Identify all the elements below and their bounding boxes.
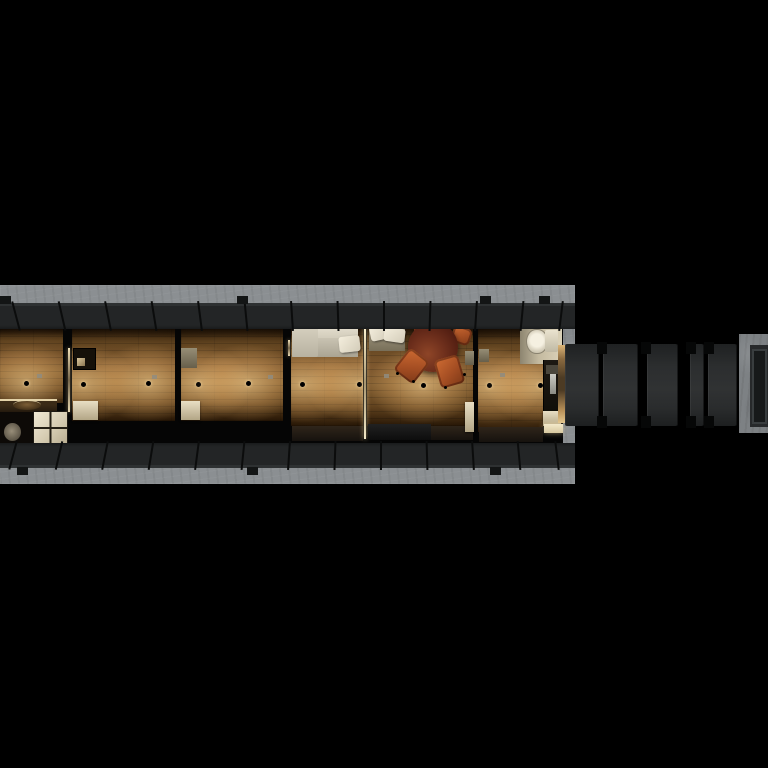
roof-seam: [333, 441, 336, 470]
hull-roof-band-bottom: [0, 443, 575, 468]
roof-seam: [474, 301, 478, 331]
gangway-notch-top: [641, 342, 651, 354]
lounge-bench: [292, 426, 363, 441]
dining-cabinet: [465, 402, 474, 432]
roof-tab: [17, 467, 28, 475]
roof-seam: [197, 301, 203, 331]
bathroom-tile-floor: [33, 411, 68, 445]
counter-sink-slit: [550, 374, 556, 394]
roof-seam: [380, 441, 382, 470]
entry-mat: [368, 424, 431, 440]
entry-gangway: [563, 343, 740, 427]
sofa-chaise: [292, 326, 318, 357]
cabin-1-floor: [0, 329, 63, 403]
gangway-notch-top: [686, 342, 696, 354]
kitchen-bench: [479, 427, 543, 442]
roof-seam: [471, 441, 475, 470]
roof-seam: [104, 301, 112, 331]
cabin-3-locker: [181, 401, 200, 420]
platform-well: [750, 345, 768, 427]
roof-seam: [520, 301, 525, 331]
roof-seam: [554, 441, 559, 470]
roof-seam: [517, 441, 522, 470]
cabin-2-locker: [73, 401, 98, 420]
gangway-panel-2: [603, 344, 638, 426]
roof-seam: [241, 441, 246, 470]
platform-hatch: [752, 349, 767, 424]
hull-roof-band-top: [0, 303, 575, 329]
floor-plan-render: [0, 0, 768, 768]
roof-tab: [0, 296, 11, 304]
ceiling-light: [81, 382, 86, 387]
ceiling-light: [246, 381, 251, 386]
gangway-panel-5: [708, 344, 737, 426]
roof-tab: [237, 296, 248, 304]
cabin-2-cabinet-item: [77, 358, 85, 366]
toilet-tank: [545, 330, 558, 352]
roof-seam: [337, 301, 340, 331]
ceiling-vent: [384, 374, 389, 378]
chair-leg-3: [463, 373, 466, 376]
gangway-notch-bottom: [686, 416, 696, 428]
roof-tab: [539, 296, 550, 304]
kitchen-shelf-lit: [544, 424, 563, 433]
gangway-notch-bottom: [704, 416, 714, 428]
gangway-notch-bottom: [597, 416, 607, 428]
chair-leg-1: [412, 380, 415, 383]
gangway-panel-4: [690, 344, 704, 426]
ceiling-light-glow: [0, 344, 63, 403]
gangway-panel-1: [565, 344, 599, 426]
roof-seam: [383, 301, 385, 331]
galley-sink: [13, 400, 41, 410]
gangway-notch-top: [704, 342, 714, 354]
roof-seam: [558, 301, 564, 331]
gangway-panel-3: [647, 344, 678, 426]
ceiling-light: [24, 381, 29, 386]
ceiling-light: [421, 383, 426, 388]
roof-tab: [490, 467, 501, 475]
roof-seam: [148, 441, 155, 470]
chair-leg-2: [444, 386, 447, 389]
entry-platform: [739, 334, 768, 433]
roof-seam: [244, 301, 249, 331]
door-gap-light-2: [288, 340, 290, 356]
door-gap-light-3: [364, 327, 366, 439]
ceiling-vent: [500, 373, 505, 377]
roof-tab: [480, 296, 491, 304]
roof-seam: [287, 441, 291, 470]
roof-seam: [194, 441, 200, 470]
gangway-notch-bottom: [641, 416, 651, 428]
roof-seam: [426, 441, 429, 470]
dining-pillow-2: [383, 327, 406, 344]
bathroom-fixture: [4, 423, 21, 441]
sofa-pillow: [338, 335, 361, 353]
roof-seam: [290, 301, 294, 331]
ceiling-light: [357, 382, 362, 387]
kitchen-cabinet-smudge: [479, 349, 489, 362]
roof-seam: [429, 301, 432, 331]
roof-seam: [58, 301, 67, 331]
door-gap-light-1: [68, 348, 70, 412]
dining-cabinet-top: [465, 351, 474, 365]
ceiling-vent: [152, 375, 157, 379]
ceiling-vent: [37, 374, 42, 378]
roof-seam: [8, 441, 17, 470]
roof-seam: [11, 301, 21, 331]
cabin-3-locker-top: [181, 348, 197, 368]
chair-leg-4: [396, 372, 399, 375]
ceiling-vent: [268, 375, 273, 379]
roof-seam: [151, 301, 158, 331]
roof-seam: [55, 441, 63, 470]
roof-seam: [101, 441, 109, 470]
roof-tab: [247, 467, 258, 475]
gangway-notch-top: [597, 342, 607, 354]
ceiling-light: [146, 381, 151, 386]
